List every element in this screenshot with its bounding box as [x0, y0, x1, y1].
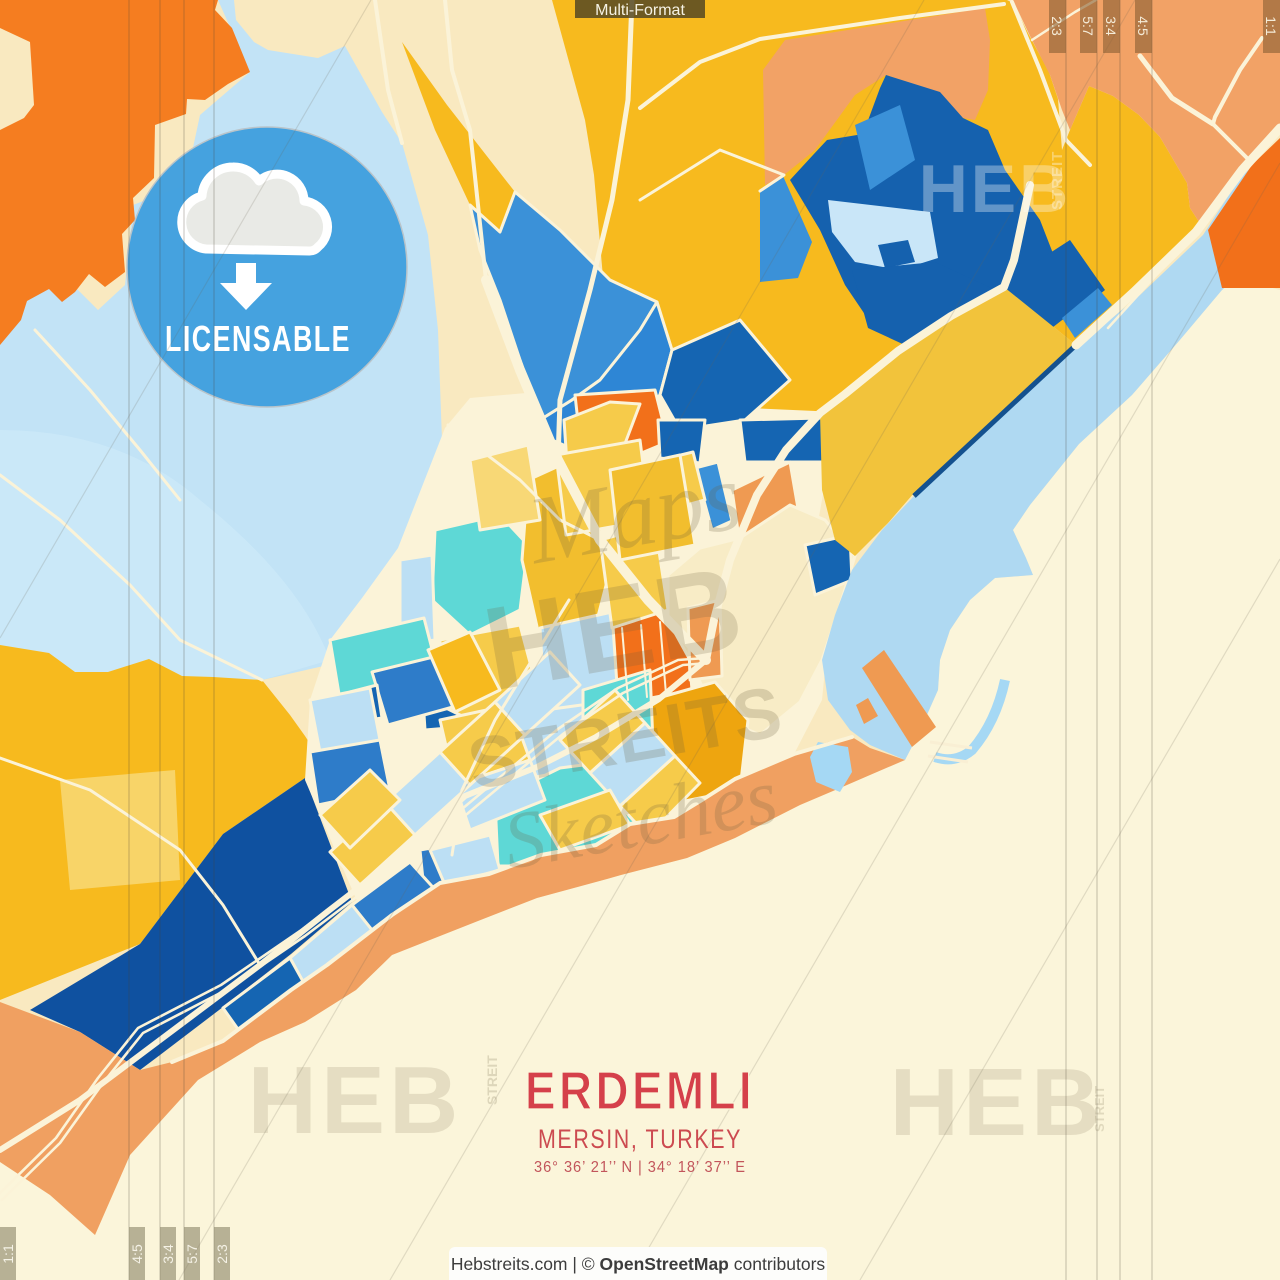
svg-text:5:7: 5:7 — [184, 1244, 200, 1264]
svg-text:1:1: 1:1 — [0, 1244, 16, 1264]
svg-text:4:5: 4:5 — [129, 1244, 145, 1264]
svg-text:2:3: 2:3 — [1049, 16, 1065, 36]
svg-text:36° 36’ 21’’ N | 34° 18’: 36° 36’ 21’’ N | 34° 18’ 37’’ E — [534, 1159, 746, 1176]
svg-text:Hebstreits.com | © OpenStreetM: Hebstreits.com | © OpenStreetMap contrib… — [451, 1254, 826, 1274]
svg-text:STREIT: STREIT — [484, 1055, 500, 1105]
svg-text:3:4: 3:4 — [160, 1244, 176, 1264]
svg-text:MERSIN, TURKEY: MERSIN, TURKEY — [538, 1124, 742, 1154]
svg-text:1:1: 1:1 — [1263, 16, 1279, 36]
svg-text:3:4: 3:4 — [1103, 16, 1119, 36]
svg-text:5:7: 5:7 — [1080, 16, 1096, 36]
svg-text:HEB: HEB — [890, 1049, 1105, 1156]
svg-text:4:5: 4:5 — [1135, 16, 1151, 36]
svg-text:STREIT: STREIT — [1092, 1086, 1107, 1132]
svg-text:HEB: HEB — [248, 1047, 463, 1154]
svg-text:2:3: 2:3 — [214, 1244, 230, 1264]
svg-text:Multi-Format: Multi-Format — [595, 2, 685, 19]
svg-text:LICENSABLE: LICENSABLE — [165, 318, 351, 359]
svg-text:ERDEMLI: ERDEMLI — [525, 1061, 755, 1121]
svg-text:STREIT: STREIT — [1049, 151, 1066, 210]
